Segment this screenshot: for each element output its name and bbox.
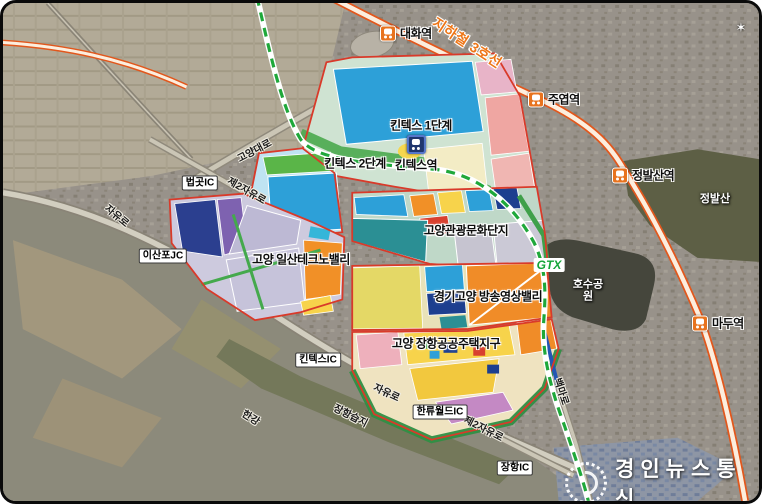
station-kintex: 킨텍스역 — [395, 135, 437, 173]
zone-label-tourism: 고양관광문화단지 — [424, 225, 508, 238]
station-madu: 마두역 — [692, 315, 744, 332]
jc-isanpo: 이산포JC — [139, 249, 187, 264]
subway-station-icon — [528, 91, 544, 107]
zone-label-kintex2: 킨텍스 2단계 — [324, 158, 386, 171]
station-label: 마두역 — [712, 315, 744, 332]
station-juyeop: 주엽역 — [528, 91, 580, 108]
subway-station-icon — [380, 25, 396, 41]
subway-station-icon — [612, 167, 628, 183]
lake-park-label: 호수공원 — [571, 279, 605, 302]
ic-beopgot: 법곳IC — [182, 176, 218, 191]
station-label: 주엽역 — [548, 91, 580, 108]
compass-icon: ✶ — [736, 20, 747, 36]
gtx-station-icon — [406, 135, 425, 154]
subway-station-icon — [692, 315, 708, 331]
station-daehwa: 대화역 — [380, 25, 432, 42]
aerial-development-map: 대화역 주엽역 정발산역 마두역 킨텍스역 킨텍스 1단계 킨텍스 2단계 고양… — [0, 0, 762, 504]
jeongbalsan-label: 정발산 — [700, 194, 730, 206]
news-watermark: 경인뉴스통신 — [565, 453, 759, 504]
ic-hallyuworld: 한류월드IC — [413, 405, 468, 420]
ic-janghang: 장항IC — [497, 461, 533, 476]
zone-label-technovalley: 고양 일산테크노밸리 — [252, 254, 350, 267]
zone-label-janghang-housing: 고양 장항공공주택지구 — [392, 338, 500, 351]
gtx-badge: GTX — [534, 258, 565, 272]
ic-kintex: 킨텍스IC — [295, 353, 341, 368]
station-label: 대화역 — [400, 25, 432, 42]
zone-label-kintex1: 킨텍스 1단계 — [390, 120, 452, 133]
station-jeongbalsan: 정발산역 — [612, 167, 674, 184]
news-agency-name: 경인뉴스통신 — [615, 453, 759, 504]
zone-label-media-valley: 경기고양 방송영상밸리 — [434, 291, 542, 304]
map-graphic — [3, 3, 759, 501]
news-agency-logo-icon — [565, 462, 607, 504]
station-label: 정발산역 — [632, 167, 674, 184]
station-label: 킨텍스역 — [395, 156, 437, 173]
